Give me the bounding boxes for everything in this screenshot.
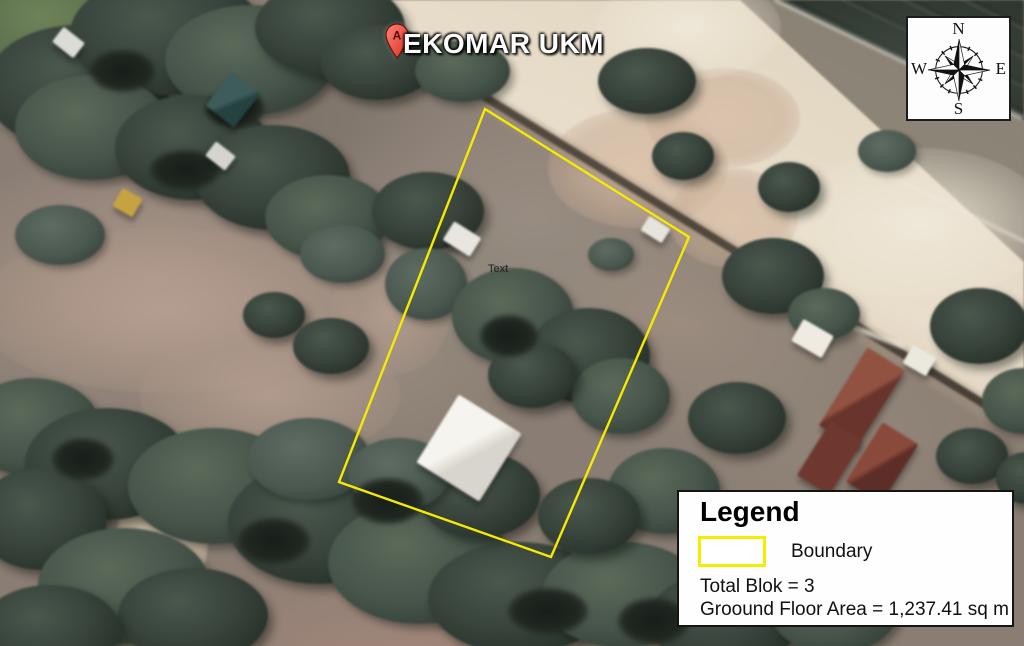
tree-shadow [508, 588, 588, 634]
legend-title: Legend [700, 496, 800, 528]
tree-canopy [858, 130, 916, 172]
tree-canopy [15, 205, 105, 265]
compass-east-label: E [996, 60, 1006, 77]
tree-canopy [588, 238, 634, 271]
tree-canopy [572, 358, 670, 434]
legend-total-blok: Total Blok = 3 [700, 576, 815, 598]
legend-floor-area: Groound Floor Area = 1,237.41 sq m [700, 599, 1009, 621]
compass-rose: N S W E [906, 16, 1011, 121]
tree-canopy [652, 132, 714, 180]
legend-panel: Legend Boundary Total Blok = 3 Groound F… [677, 490, 1014, 627]
tree-shadow [480, 315, 538, 357]
tree-canopy [300, 225, 385, 283]
tree-canopy [293, 318, 369, 374]
tree-shadow [52, 438, 114, 480]
tree-shadow [352, 478, 424, 524]
site-text-label: Text [488, 263, 508, 275]
tree-canopy [243, 292, 305, 338]
pin-letter: A [393, 29, 402, 43]
tree-shadow [90, 50, 155, 92]
compass-star-icon [922, 33, 996, 107]
tree-canopy [538, 478, 640, 554]
legend-item-label: Boundary [791, 541, 872, 563]
tree-canopy [930, 288, 1024, 364]
map-canvas: Text A EKOMAR UKM N S W E [0, 0, 1024, 646]
tree-canopy [598, 48, 696, 114]
marker-label: EKOMAR UKM [403, 30, 604, 58]
tree-canopy [688, 382, 786, 454]
legend-item-boundary: Boundary [698, 536, 872, 567]
tree-canopy [758, 162, 820, 212]
tree-shadow [238, 518, 310, 564]
boundary-swatch [698, 536, 766, 567]
